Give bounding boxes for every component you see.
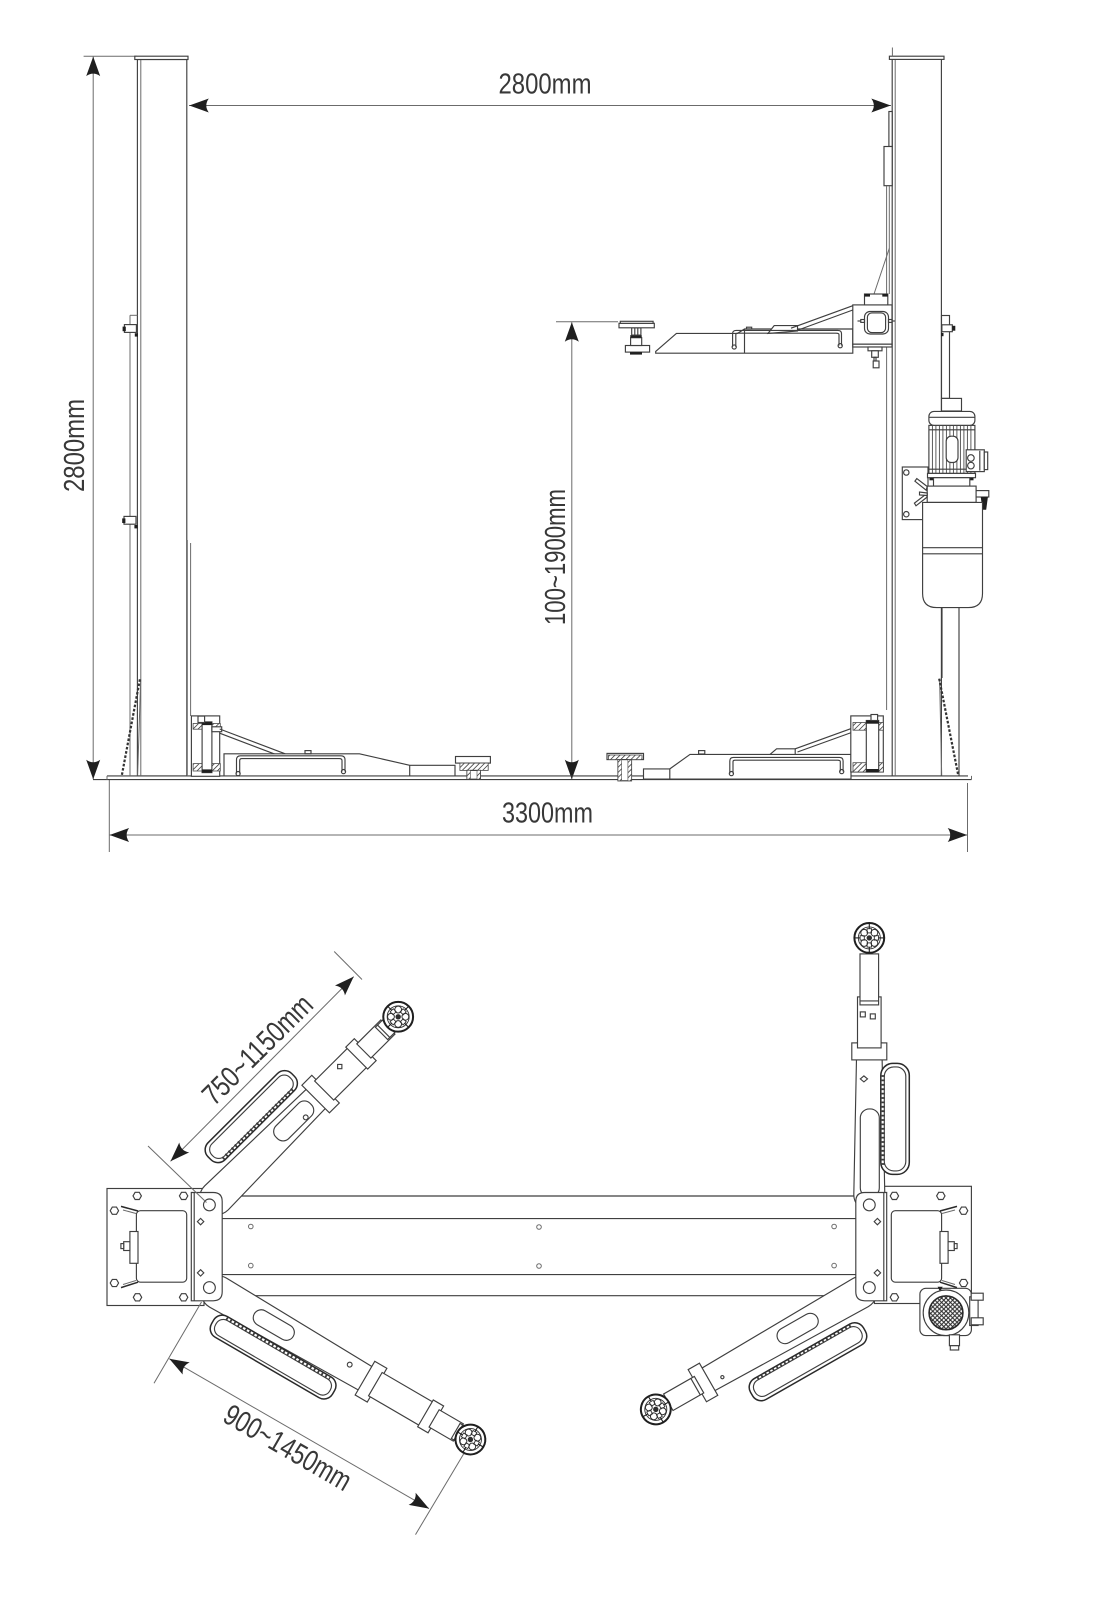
svg-text:900~1450mm: 900~1450mm [218,1398,357,1498]
svg-text:2800mm: 2800mm [499,69,592,101]
svg-text:100~1900mm: 100~1900mm [540,489,572,625]
svg-text:3300mm: 3300mm [502,797,593,829]
svg-text:2800mm: 2800mm [59,399,91,492]
